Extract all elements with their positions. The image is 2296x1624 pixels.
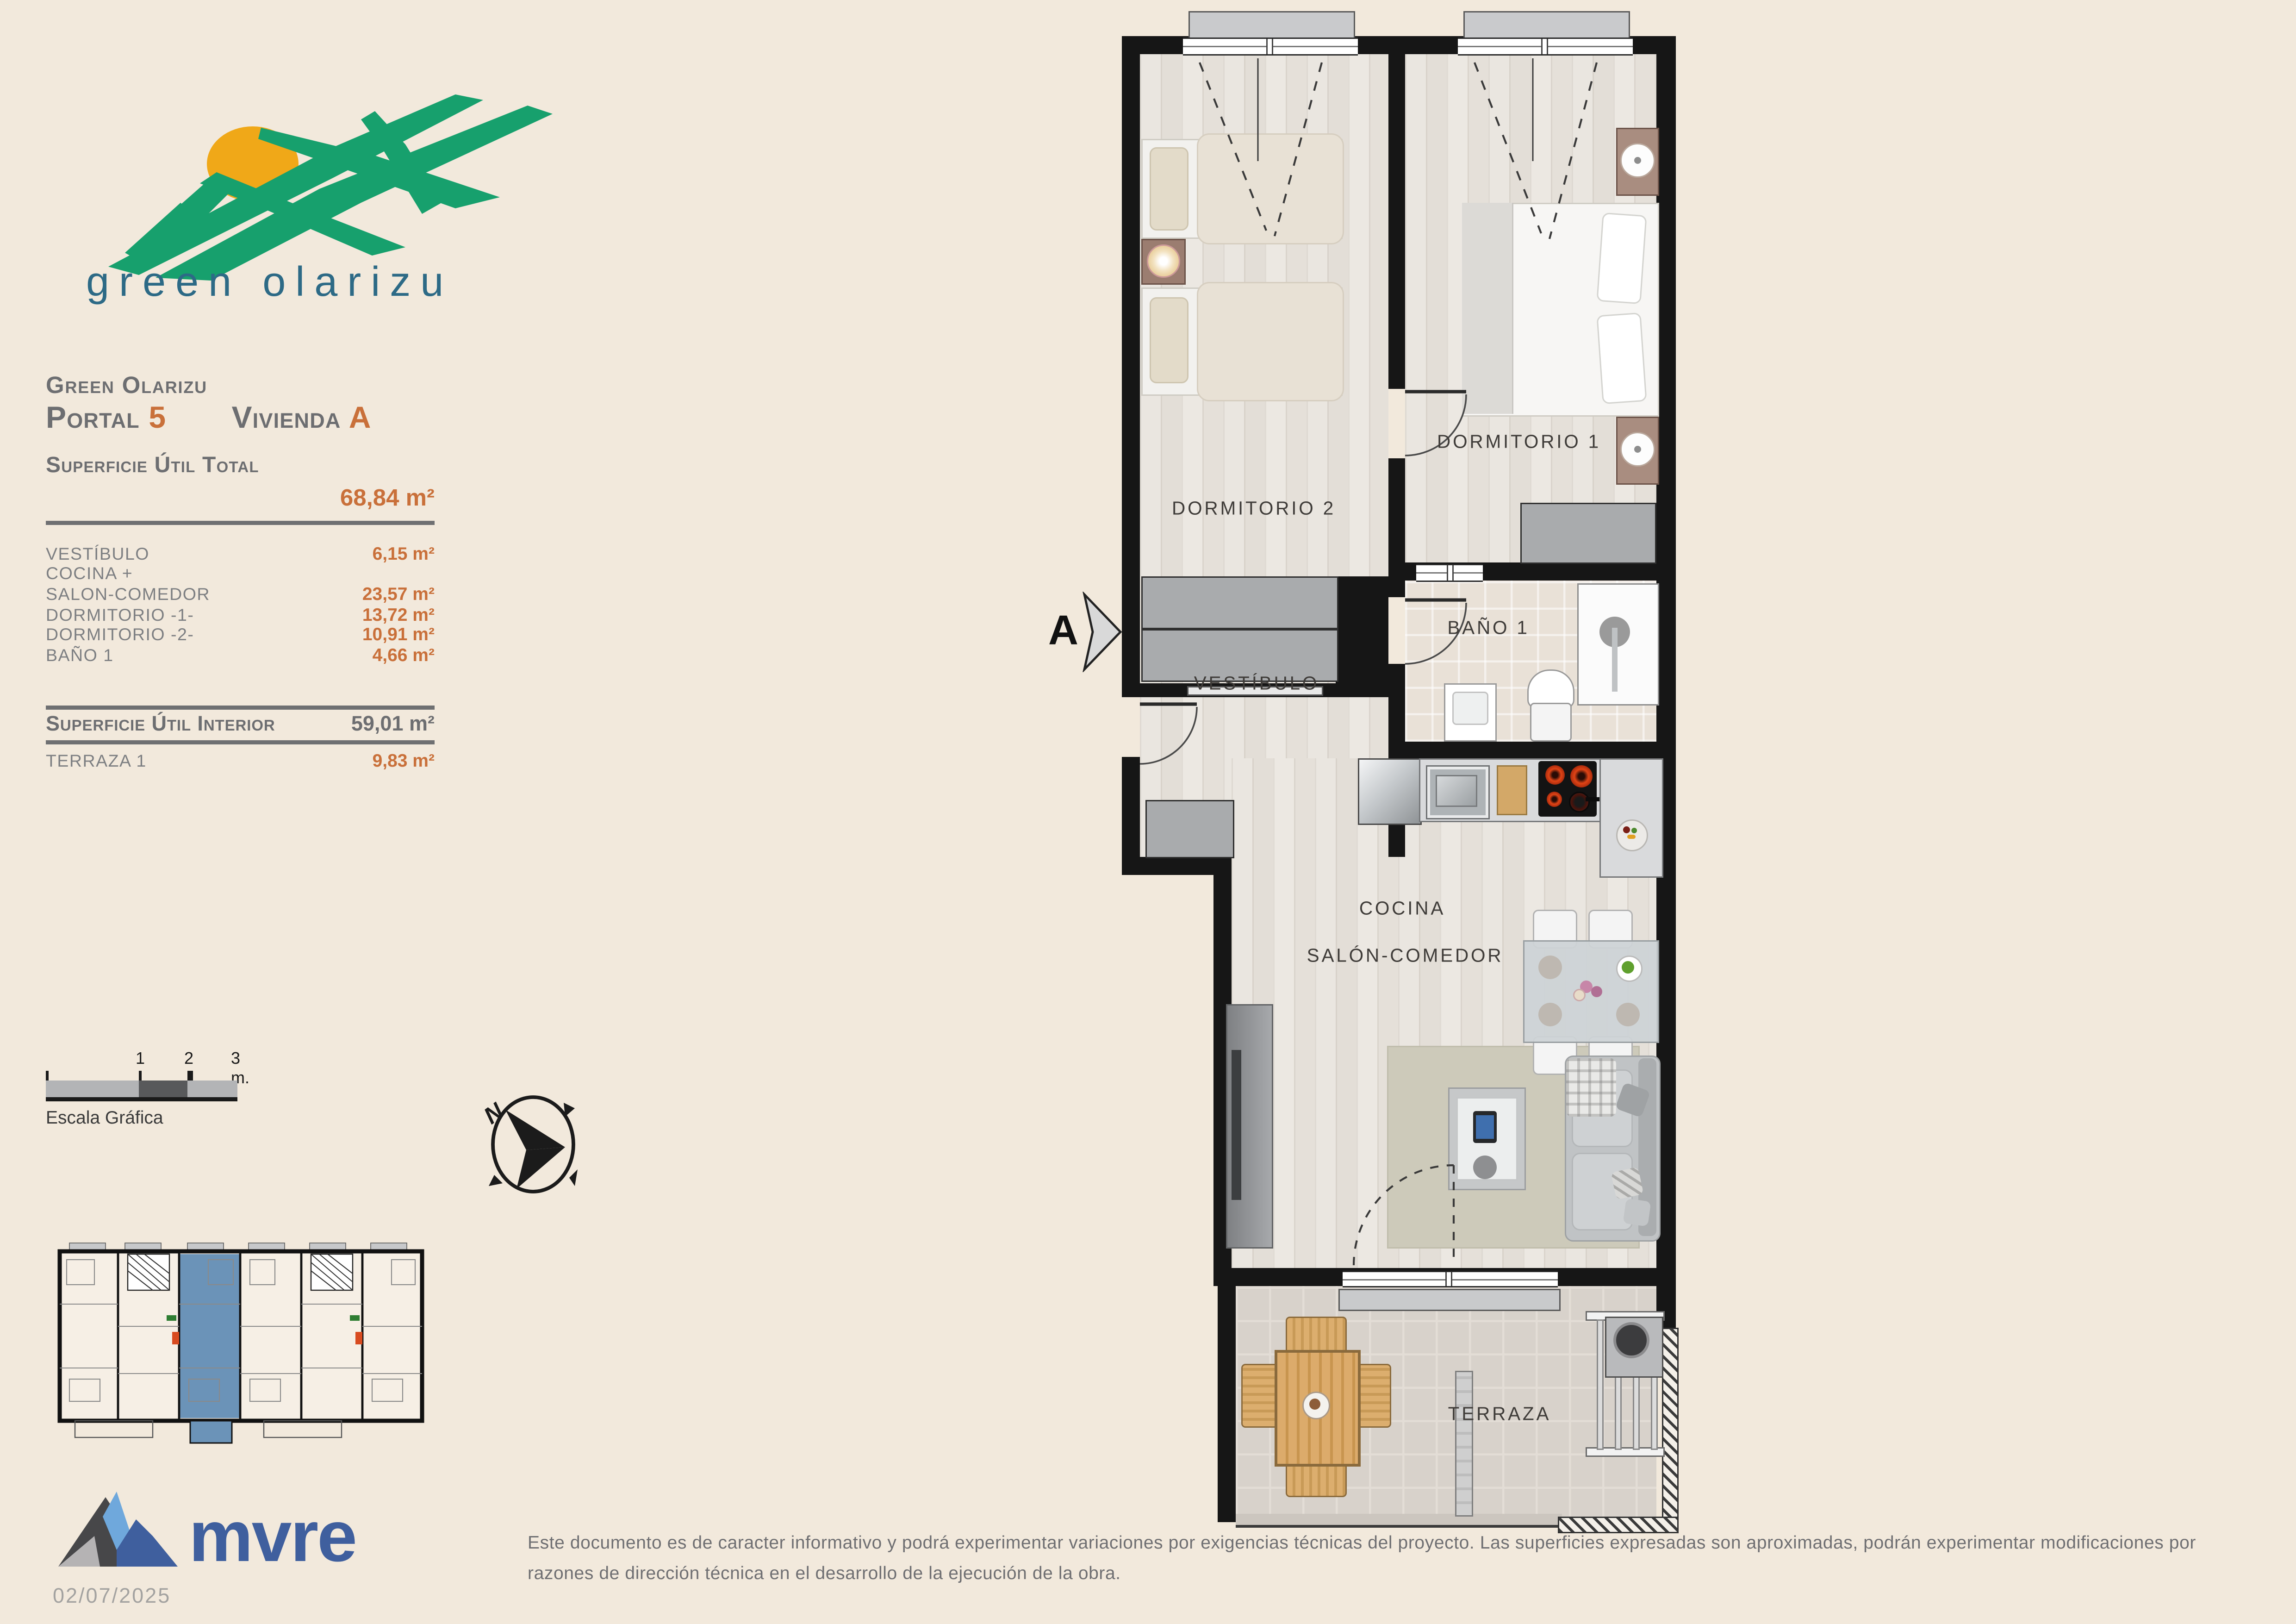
label-terraza: TERRAZA bbox=[1448, 1404, 1551, 1424]
label-bano: BAÑO 1 bbox=[1447, 618, 1529, 638]
plan-annotations bbox=[0, 0, 2296, 1624]
label-dormitorio1: DORMITORIO 1 bbox=[1437, 431, 1601, 452]
label-vestibulo: VESTÍBULO bbox=[1194, 673, 1319, 694]
label-salon: SALÓN-COMEDOR bbox=[1307, 945, 1504, 966]
label-cocina: COCINA bbox=[1359, 898, 1445, 919]
label-dormitorio2: DORMITORIO 2 bbox=[1172, 498, 1336, 519]
floorplan-document: green olarizu Green Olarizu Portal 5 Viv… bbox=[0, 0, 2296, 1624]
